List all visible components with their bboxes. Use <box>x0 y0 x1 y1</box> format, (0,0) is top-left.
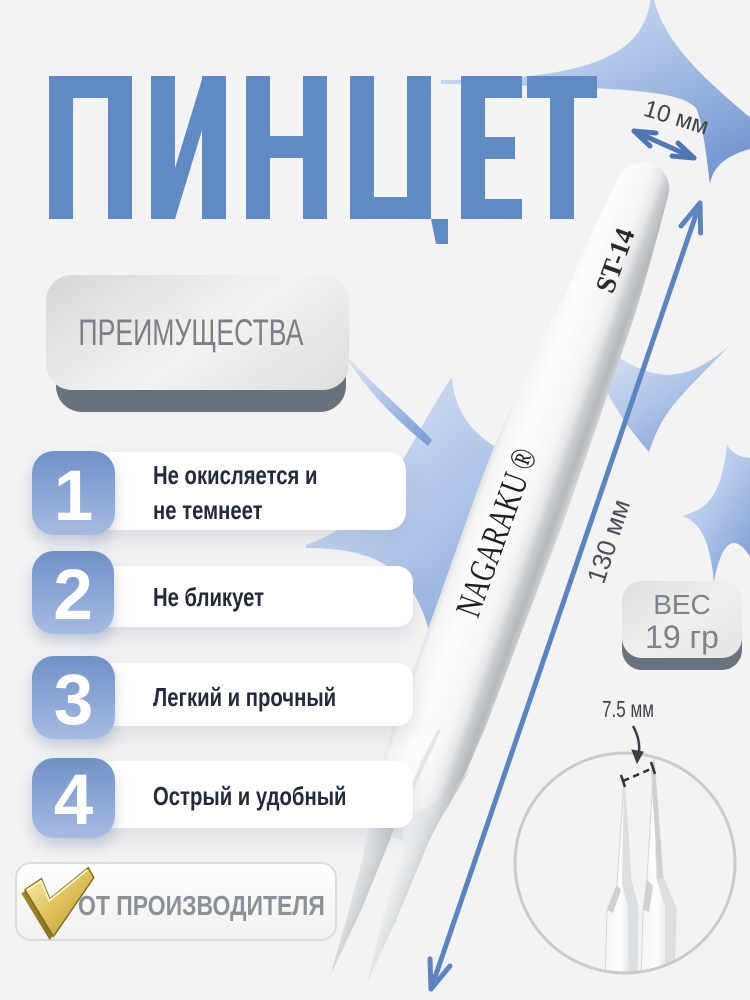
svg-text:7.5 мм: 7.5 мм <box>602 696 654 722</box>
